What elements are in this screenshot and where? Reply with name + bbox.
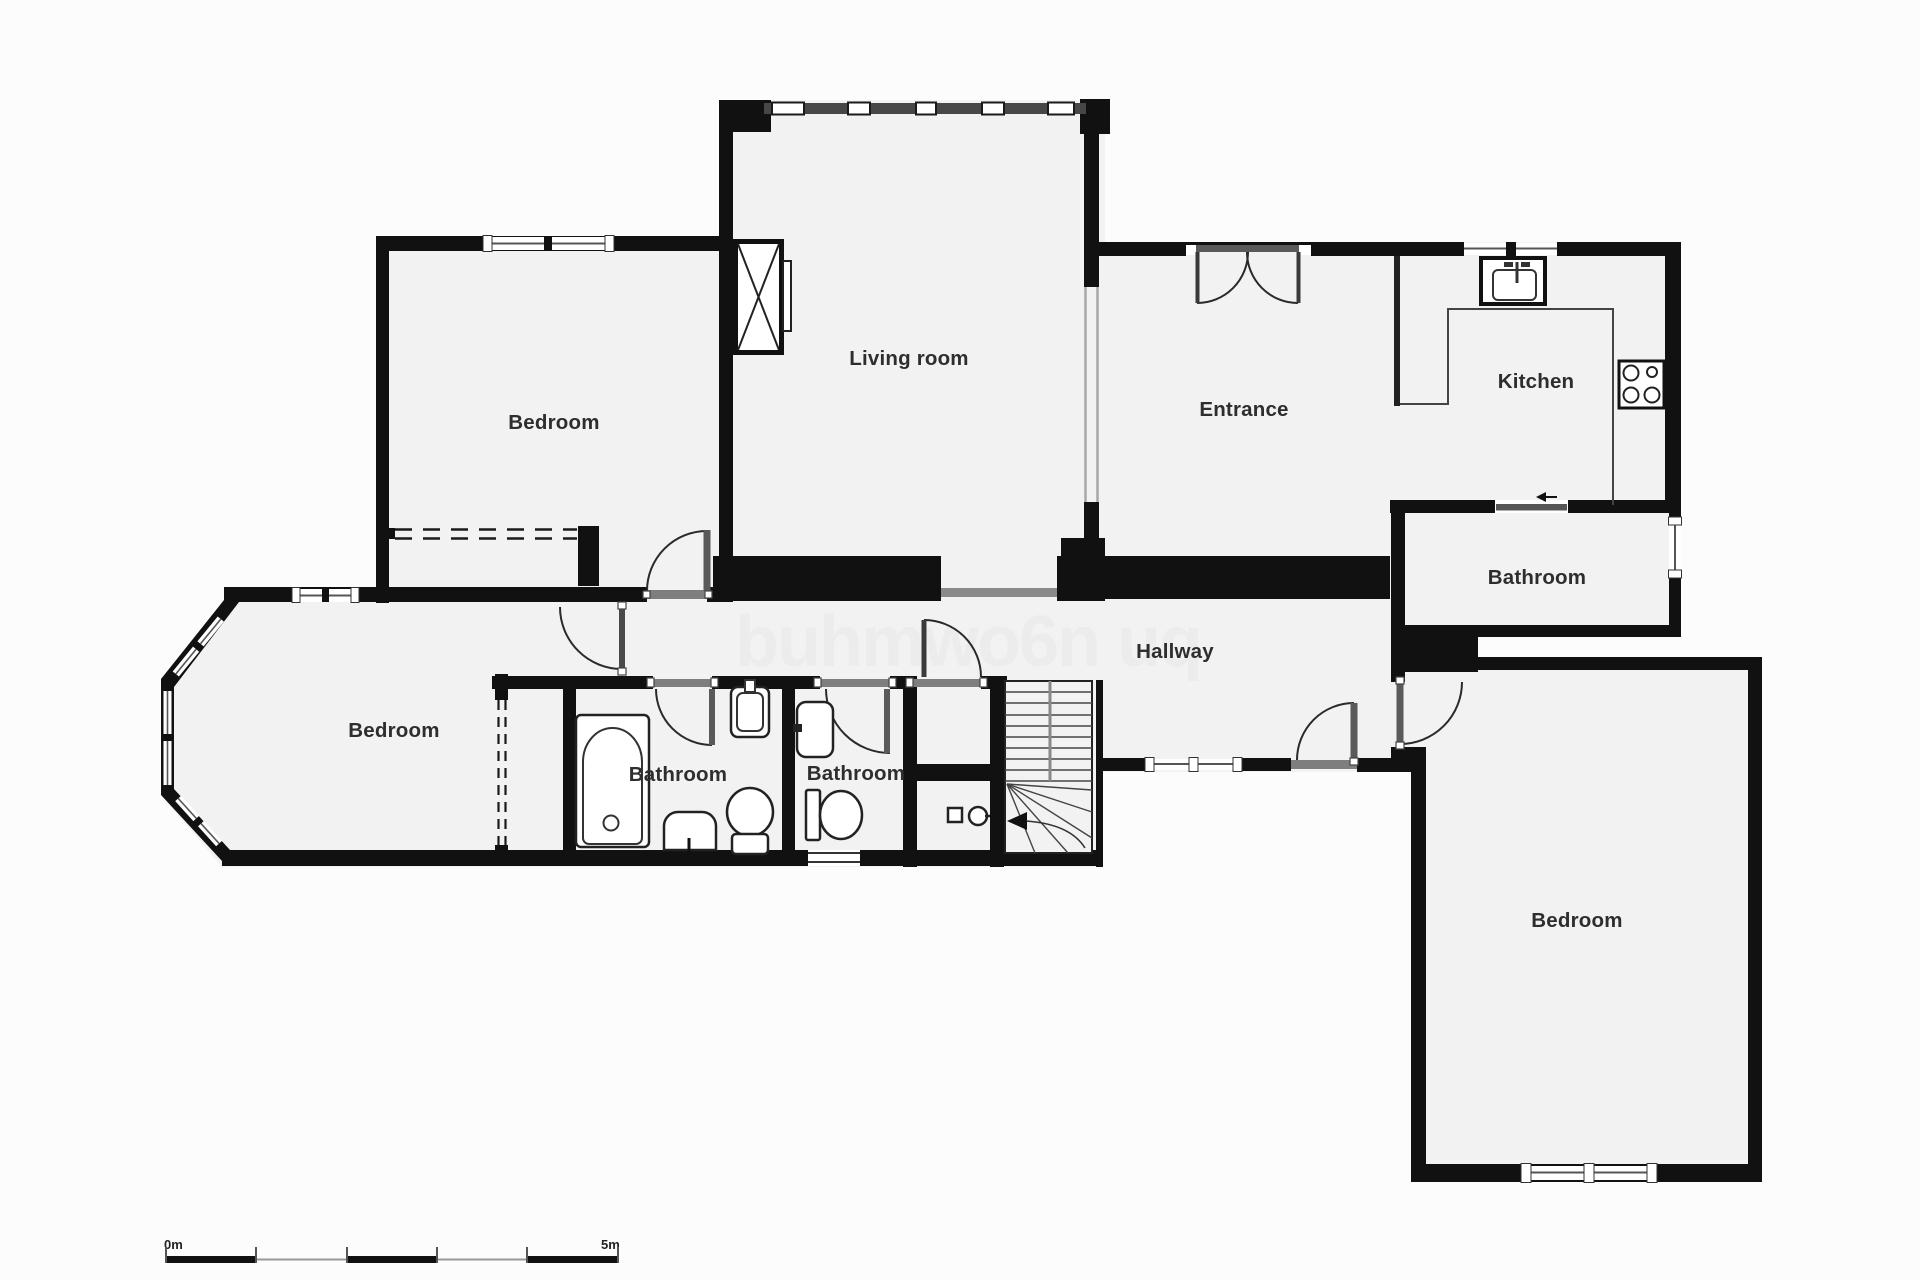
svg-text:5m: 5m <box>601 1237 620 1252</box>
svg-text:Bedroom: Bedroom <box>348 719 439 742</box>
svg-text:Bathroom: Bathroom <box>1488 566 1586 589</box>
svg-text:Bathroom: Bathroom <box>807 762 905 785</box>
svg-text:Living room: Living room <box>849 347 969 370</box>
svg-text:Kitchen: Kitchen <box>1498 370 1575 393</box>
svg-text:Hallway: Hallway <box>1136 640 1214 663</box>
svg-text:Bedroom: Bedroom <box>1531 909 1622 932</box>
svg-text:Entrance: Entrance <box>1199 398 1288 421</box>
svg-text:Bedroom: Bedroom <box>508 411 599 434</box>
svg-text:Bathroom: Bathroom <box>629 763 727 786</box>
